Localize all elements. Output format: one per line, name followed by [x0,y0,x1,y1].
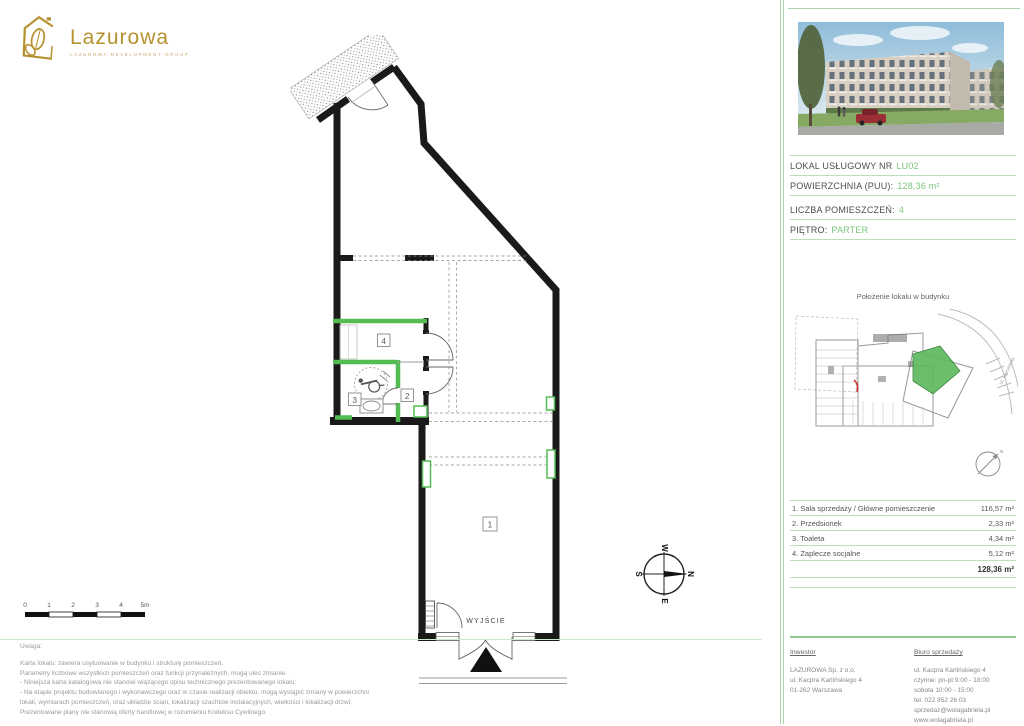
sales-website: www.wolagabriela.pl [914,716,1018,726]
scale-tick-5: 5m [140,602,149,609]
footer-divider [790,636,1016,638]
room-label-4: 4 [381,337,386,346]
investor-heading: Inwestor [790,648,902,659]
room-label-3: 3 [352,396,357,405]
brand-tagline: LAZUROWA DEVELOPMENT GROUP [70,52,190,57]
room-count-label: LICZBA POMIESZCZEŃ: [790,205,895,215]
total-area: 128,36 m² [790,561,1016,578]
scale-bar: 0 1 2 3 4 5m [18,597,168,627]
sales-email: sprzedaz@wolagabriela.pl [914,706,1018,716]
notes-block: Uwaga: Karta lokalu: zawiera usytuowanie… [20,642,580,717]
compass-rose: N W S E [634,542,694,606]
unit-area-label: POWIERZCHNIA (PUU): [790,181,893,191]
room-name: 2. Przedsionek [792,519,842,528]
room-count-value: 4 [899,205,904,215]
room-name: 1. Sala sprzedaży / Główne pomieszczenie [792,504,935,513]
scale-tick-1: 1 [47,602,51,609]
floor-value: PARTER [831,225,868,235]
site-compass-n: N [1000,449,1003,454]
highlighted-unit [913,346,960,394]
room-name: 4. Zaplecze socjalne [792,549,860,558]
compass-e: E [660,598,669,604]
investor-line: LAZUROWA Sp. z o.o. [790,666,902,676]
room-area: 4,34 m² [989,534,1014,543]
house-leaf-logo-icon [16,14,62,62]
rooms-table: 1. Sala sprzedaży / Główne pomieszczenie… [790,500,1016,588]
brand-text: Lazurowa LAZUROWA DEVELOPMENT GROUP [70,26,190,57]
note-line: - Na etapie projektu budowlanego i wykon… [20,688,580,698]
table-row: 3. Toaleta 4,34 m² [790,531,1016,546]
existing-building [873,334,907,342]
table-row: 4. Zaplecze socjalne 5,12 m² [790,546,1016,561]
panel-divider-line [780,0,781,724]
site-compass: N [976,449,1003,476]
scale-tick-3: 3 [95,602,99,609]
unit-number-row: LOKAL USŁUGOWY NR LU02 [790,156,1016,176]
floor-row: PIĘTRO: PARTER [790,220,1016,240]
unit-area-row: POWIERZCHNIA (PUU): 128,36 m² [790,176,1016,196]
table-row: 1. Sala sprzedaży / Główne pomieszczenie… [790,500,1016,516]
unit-number-value: LU02 [896,161,918,171]
unit-card-page: { "brand": { "name": "Lazurowa", "taglin… [0,0,1024,724]
floor-label: PIĘTRO: [790,225,827,235]
stair-cores [828,361,914,382]
note-line: lokali, wymiarach pomieszczeń, oraz ukła… [20,698,580,708]
room-count-row: LICZBA POMIESZCZEŃ: 4 [790,200,1016,220]
parcel-boundary [795,316,858,392]
radiator [426,601,435,628]
notes-title: Uwaga: [20,642,580,652]
unit-area-value: 128,36 m² [897,181,939,191]
scale-tick-2: 2 [71,602,75,609]
table-row: 2. Przedsionek 2,33 m² [790,516,1016,531]
compass-w: W [660,544,669,552]
unit-number-label: LOKAL USŁUGOWY NR [790,161,892,171]
note-line: - Niniejsza karta katalogowa nie stanowi… [20,678,580,688]
building-photo [798,22,1004,135]
investor-line: 01-262 Warszawa [790,686,902,696]
room-label-2: 2 [405,392,410,401]
washbasin-icon [360,399,383,413]
room-area: 5,12 m² [989,549,1014,558]
sales-office-block: Biuro sprzedaży ul. Kacpra Karlińskiego … [914,648,1018,726]
room-label-1: 1 [488,521,493,530]
unit-info: LOKAL USŁUGOWY NR LU02 POWIERZCHNIA (PUU… [790,155,1016,240]
green-fixtures [414,397,555,487]
investor-block: Inwestor LAZUROWA Sp. z o.o. ul. Kacpra … [790,648,902,696]
counter [340,325,357,359]
exit-label: WYJŚCIE [466,616,506,625]
sales-office-heading: Biuro sprzedaży [914,648,1018,659]
note-line: Parametry liczbowe wszystkich pomieszcze… [20,669,580,679]
compass-s: S [634,571,643,577]
location-map-title: Położenie lokalu w budynku [790,292,1016,301]
sales-line: tel. 022 852 26 03 [914,696,1018,706]
site-plan: ul. Lazurowa N [788,306,1018,488]
scale-tick-0: 0 [23,602,27,609]
table-spacer [790,578,1016,588]
door-swings [348,81,512,660]
investor-line: ul. Kacpra Karlińskiego 4 [790,676,902,686]
brand-name: Lazurowa [70,26,190,50]
room-name: 3. Toaleta [792,534,824,543]
note-line: Karta lokalu: zawiera usytuowanie w budy… [20,659,580,669]
room-area: 116,57 m² [981,504,1014,513]
brand-logo: Lazurowa LAZUROWA DEVELOPMENT GROUP [16,14,190,62]
building-side [950,52,970,114]
sales-line: czynne: pn-pt 9:00 - 18:00 [914,676,1018,686]
compass-n: N [686,571,694,577]
sales-line: sobota 10:00 - 15:00 [914,686,1018,696]
floor-plan: 1 2 3 4 WYJŚCIE [290,35,582,695]
note-line: Prezentowane plany nie stanowią oferty h… [20,708,580,718]
panel-divider-line-2 [783,0,784,724]
room-area: 2,33 m² [989,519,1014,528]
outer-walls [318,67,558,641]
scale-tick-4: 4 [119,602,123,609]
apartment-divisions [816,350,923,426]
panel-top-line [788,8,1020,9]
bottom-divider-left [0,639,762,640]
sales-line: ul. Kacpra Karlińskiego 4 [914,666,1018,676]
